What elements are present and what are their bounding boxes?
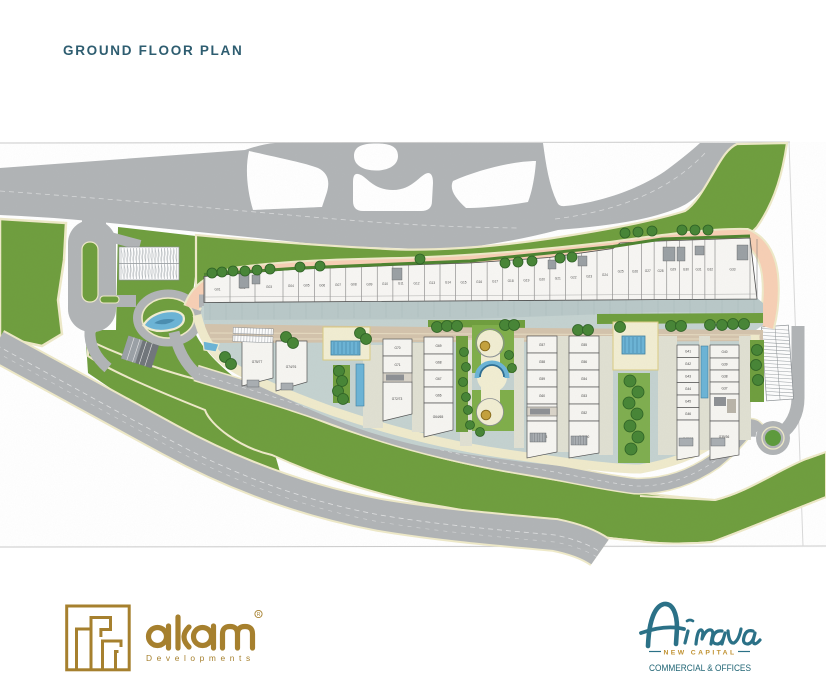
svg-text:Developments: Developments bbox=[146, 653, 255, 663]
svg-text:R: R bbox=[257, 612, 261, 618]
svg-text:GROUND FLOOR PLAN: GROUND FLOOR PLAN bbox=[63, 43, 243, 58]
svg-text:NEW CAPITAL: NEW CAPITAL bbox=[663, 650, 736, 657]
svg-text:COMMERCIAL & OFFICES: COMMERCIAL & OFFICES bbox=[649, 663, 751, 674]
